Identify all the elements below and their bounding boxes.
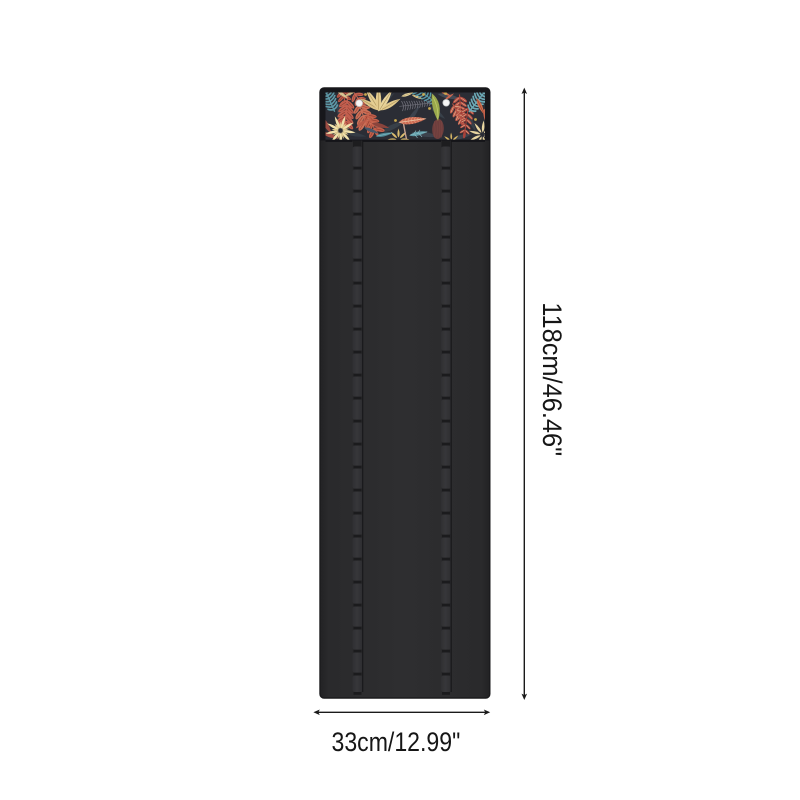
svg-text:33cm/12.99": 33cm/12.99" [332,727,461,757]
svg-text:118cm/46.46": 118cm/46.46" [537,302,567,456]
